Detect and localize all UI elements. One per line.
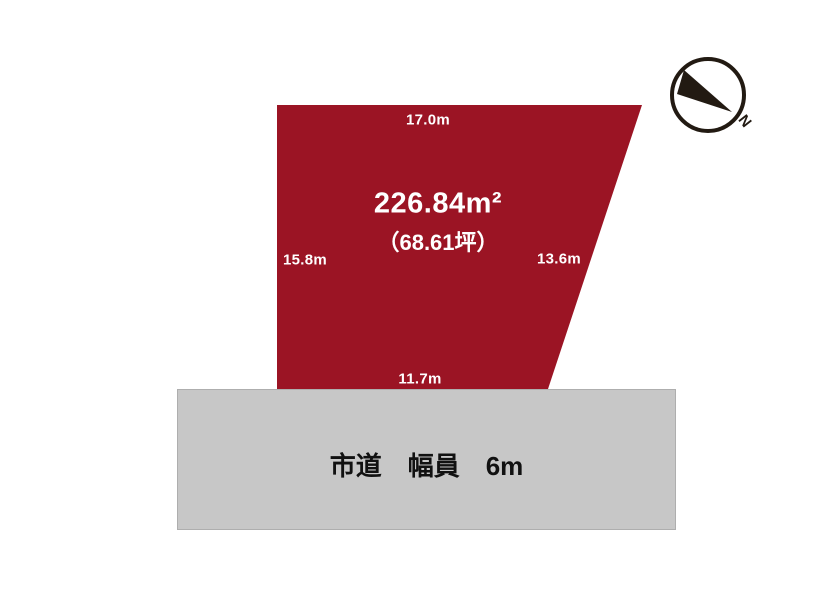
land-plot-diagram: 市道 幅員 6m 17.0m 15.8m 13.6m 11.7m 226.84m… (0, 0, 834, 595)
compass-icon: N (663, 48, 767, 152)
area-tsubo: （68.61坪） (377, 232, 498, 254)
area-square-meters: 226.84m² (374, 190, 502, 219)
road-label: 市道 幅員 6m (330, 446, 524, 483)
dimension-left: 15.8m (283, 253, 327, 268)
dimension-top: 17.0m (406, 113, 450, 128)
dimension-right: 13.6m (537, 252, 581, 267)
road-strip: 市道 幅員 6m (177, 389, 676, 530)
dimension-bottom: 11.7m (398, 372, 441, 387)
